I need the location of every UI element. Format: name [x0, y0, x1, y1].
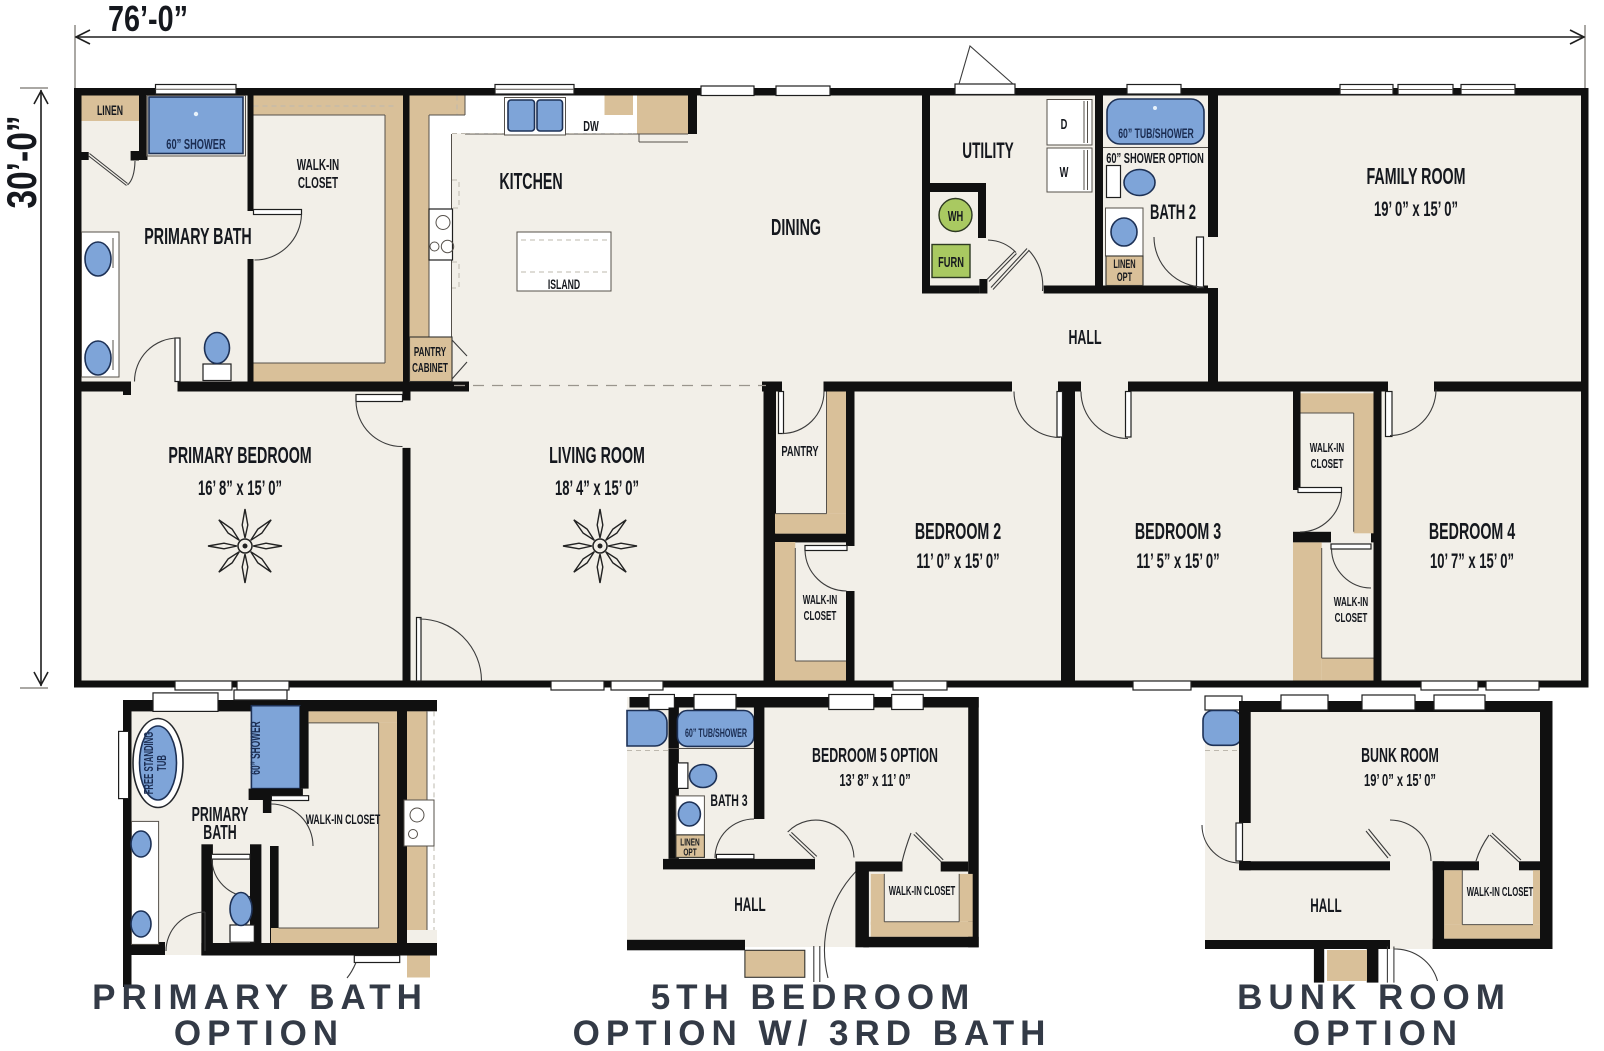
svg-text:60” SHOWER: 60” SHOWER	[166, 136, 225, 153]
svg-text:WALK-IN CLOSET: WALK-IN CLOSET	[889, 885, 956, 898]
svg-text:CLOSET: CLOSET	[1311, 457, 1344, 471]
svg-text:FURN: FURN	[938, 254, 964, 271]
svg-text:BATH 3: BATH 3	[710, 790, 747, 809]
svg-text:5TH BEDROOM: 5TH BEDROOM	[651, 978, 976, 1017]
svg-text:19’ 0” x 15’ 0”: 19’ 0” x 15’ 0”	[1374, 197, 1458, 221]
svg-text:DINING: DINING	[771, 216, 821, 241]
svg-text:CLOSET: CLOSET	[298, 174, 338, 192]
svg-text:18’ 4” x 15’ 0”: 18’ 4” x 15’ 0”	[555, 476, 639, 500]
svg-text:BEDROOM 2: BEDROOM 2	[915, 520, 1001, 545]
svg-text:ISLAND: ISLAND	[548, 277, 580, 293]
svg-text:CLOSET: CLOSET	[804, 609, 837, 623]
svg-text:60” TUB/SHOWER: 60” TUB/SHOWER	[1118, 126, 1194, 142]
svg-text:HALL: HALL	[1068, 326, 1101, 349]
svg-text:WALK-IN: WALK-IN	[803, 593, 838, 607]
svg-text:LINEN: LINEN	[97, 103, 123, 119]
svg-text:TUB: TUB	[156, 755, 169, 771]
svg-text:WALK-IN CLOSET: WALK-IN CLOSET	[306, 812, 381, 828]
svg-text:10’ 7” x 15’ 0”: 10’ 7” x 15’ 0”	[1430, 549, 1514, 573]
svg-text:60” SHOWER: 60” SHOWER	[249, 721, 263, 774]
svg-text:HALL: HALL	[734, 895, 766, 915]
svg-text:OPTION: OPTION	[174, 1014, 344, 1051]
svg-text:BEDROOM 3: BEDROOM 3	[1135, 520, 1221, 545]
svg-text:FAMILY ROOM: FAMILY ROOM	[1367, 165, 1466, 190]
svg-text:WALK-IN: WALK-IN	[297, 156, 339, 174]
svg-text:PRIMARY BATH: PRIMARY BATH	[144, 225, 251, 250]
svg-text:BATH 2: BATH 2	[1150, 200, 1196, 224]
svg-text:OPT: OPT	[1117, 271, 1132, 284]
svg-text:UTILITY: UTILITY	[962, 138, 1014, 163]
svg-text:13’ 8” x 11’ 0”: 13’ 8” x 11’ 0”	[839, 770, 910, 790]
svg-text:LINEN: LINEN	[1113, 258, 1135, 271]
svg-text:CLOSET: CLOSET	[1335, 611, 1368, 625]
svg-text:BEDROOM 4: BEDROOM 4	[1429, 520, 1516, 545]
svg-text:WALK-IN: WALK-IN	[1310, 441, 1345, 455]
svg-text:KITCHEN: KITCHEN	[499, 170, 562, 195]
svg-text:CABINET: CABINET	[412, 361, 448, 375]
svg-text:FREE STANDING: FREE STANDING	[143, 732, 156, 795]
svg-text:DW: DW	[583, 118, 599, 135]
svg-text:16’ 8” x 15’ 0”: 16’ 8” x 15’ 0”	[198, 476, 282, 500]
svg-text:HALL: HALL	[1310, 896, 1342, 916]
svg-text:WALK-IN CLOSET: WALK-IN CLOSET	[1467, 886, 1534, 899]
svg-text:WALK-IN: WALK-IN	[1334, 595, 1369, 609]
svg-text:W: W	[1060, 164, 1069, 181]
svg-text:11’ 0” x 15’ 0”: 11’ 0” x 15’ 0”	[916, 549, 999, 573]
svg-text:BUNK ROOM: BUNK ROOM	[1361, 744, 1439, 767]
svg-text:PANTRY: PANTRY	[414, 345, 447, 359]
svg-text:PANTRY: PANTRY	[781, 443, 819, 460]
svg-text:60” TUB/SHOWER: 60” TUB/SHOWER	[685, 727, 747, 740]
svg-text:19’ 0” x 15’ 0”: 19’ 0” x 15’ 0”	[1364, 770, 1436, 790]
svg-text:BEDROOM 5 OPTION: BEDROOM 5 OPTION	[812, 744, 938, 767]
svg-text:PRIMARY BEDROOM: PRIMARY BEDROOM	[168, 444, 311, 469]
svg-text:60” SHOWER OPTION: 60” SHOWER OPTION	[1106, 150, 1204, 167]
svg-text:BATH: BATH	[203, 821, 236, 844]
svg-text:11’ 5” x 15’ 0”: 11’ 5” x 15’ 0”	[1136, 549, 1219, 573]
svg-text:D: D	[1061, 116, 1068, 133]
svg-text:PRIMARY BATH: PRIMARY BATH	[92, 978, 428, 1017]
svg-text:76’-0”: 76’-0”	[108, 0, 188, 39]
svg-text:OPT: OPT	[683, 846, 697, 858]
svg-text:WH: WH	[948, 208, 963, 225]
svg-text:OPTION: OPTION	[1293, 1014, 1463, 1051]
svg-text:LIVING ROOM: LIVING ROOM	[549, 444, 645, 469]
svg-text:BUNK ROOM: BUNK ROOM	[1237, 978, 1511, 1017]
svg-text:30’-0”: 30’-0”	[0, 115, 46, 208]
svg-text:OPTION W/ 3RD BATH: OPTION W/ 3RD BATH	[573, 1014, 1052, 1051]
